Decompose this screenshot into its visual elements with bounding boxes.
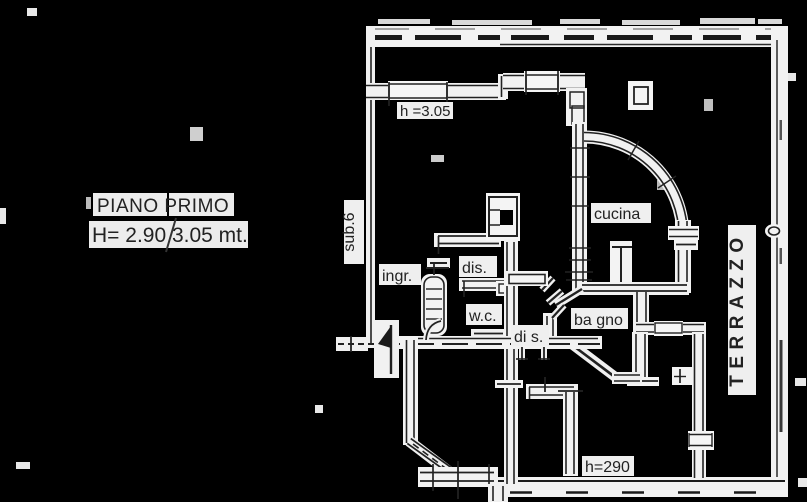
svg-text:sub.6: sub.6 [341,212,358,251]
svg-text:h =3.05: h =3.05 [400,103,450,120]
svg-text:ingr.: ingr. [382,268,412,285]
svg-text:w.c.: w.c. [468,308,497,325]
svg-text:dis.: dis. [462,260,487,277]
svg-text:ba gno: ba gno [574,312,623,329]
svg-text:di s.: di s. [514,329,543,346]
svg-text:h=290: h=290 [585,459,630,476]
svg-text:cucina: cucina [594,206,640,223]
svg-text:PIANO PRIMO: PIANO PRIMO [97,196,229,217]
svg-text:TERRAZZO: TERRAZZO [727,231,748,386]
